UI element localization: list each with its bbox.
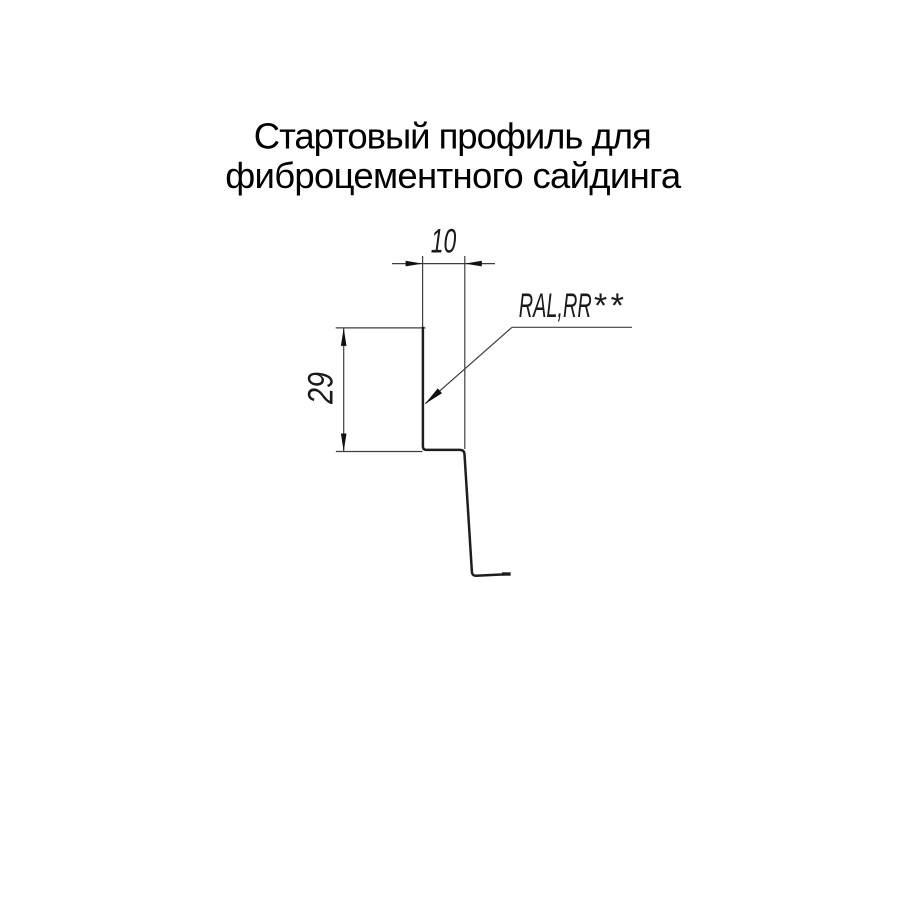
svg-text:**: ** xyxy=(593,287,625,325)
svg-text:29: 29 xyxy=(300,372,340,405)
svg-text:Стартовый профиль для: Стартовый профиль для xyxy=(254,116,652,157)
svg-text:RAL,RR: RAL,RR xyxy=(519,287,592,325)
svg-text:фиброцементного сайдинга: фиброцементного сайдинга xyxy=(225,155,682,196)
svg-text:10: 10 xyxy=(431,222,457,260)
